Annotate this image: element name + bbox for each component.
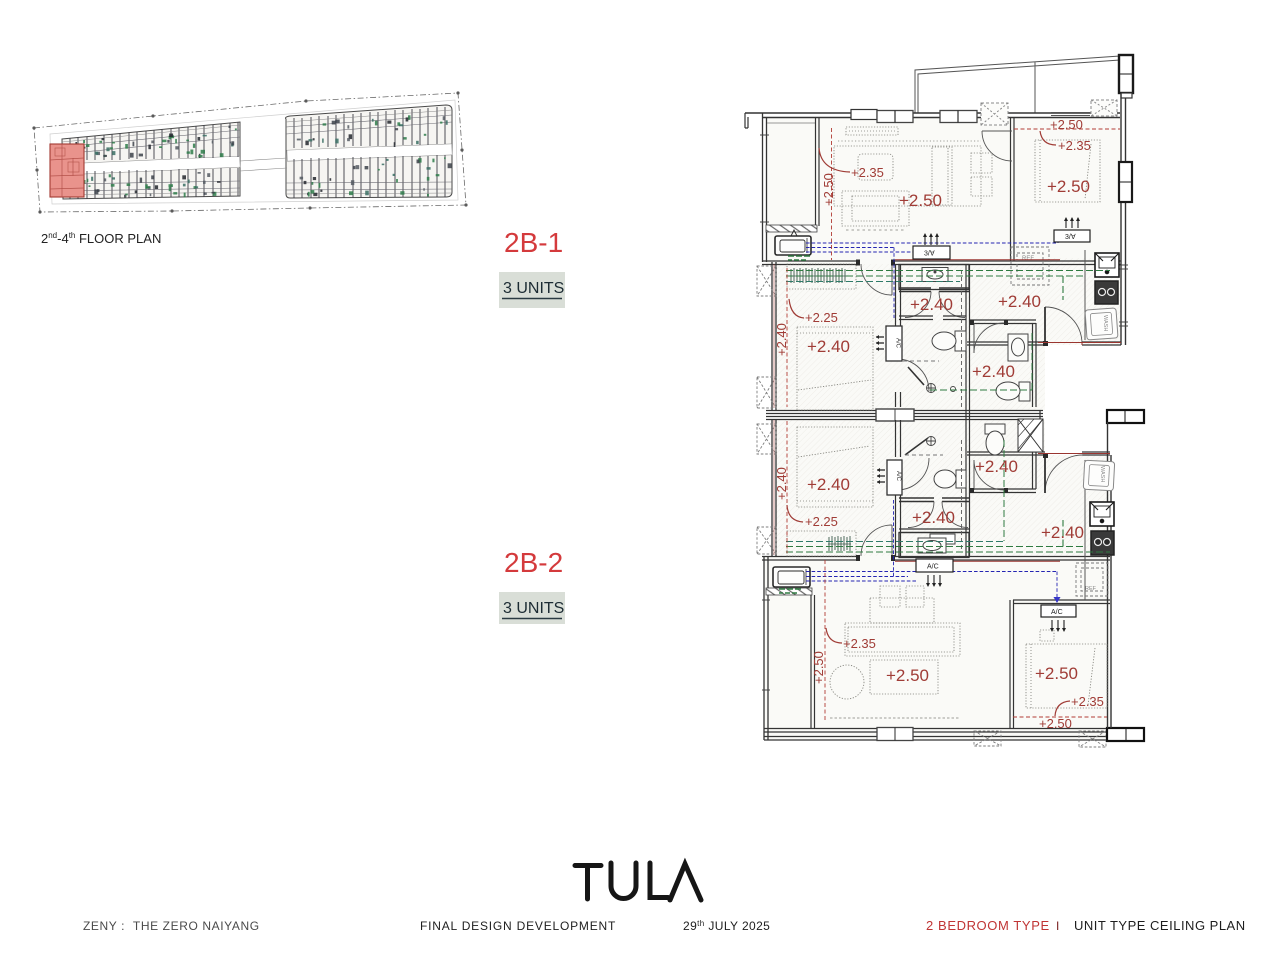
svg-text:A/C: A/C [895, 471, 901, 482]
svg-text:+2.40: +2.40 [910, 295, 953, 314]
svg-text:+2.35: +2.35 [843, 636, 876, 651]
svg-text:+2.40: +2.40 [975, 457, 1018, 476]
svg-text:3/∀: 3/∀ [924, 250, 935, 258]
svg-text:A/C: A/C [927, 564, 939, 571]
svg-text:3 UNITS: 3 UNITS [503, 280, 564, 297]
svg-text:+2.50: +2.50 [1035, 664, 1078, 683]
svg-text:2nd-4th FLOOR PLAN: 2nd-4th FLOOR PLAN [41, 231, 161, 246]
svg-text:+2.50: +2.50 [886, 666, 929, 685]
svg-text:3 UNITS: 3 UNITS [503, 600, 564, 617]
svg-text:A/C: A/C [1051, 609, 1063, 616]
svg-text:+2.25: +2.25 [805, 514, 838, 529]
svg-text:+2.50: +2.50 [1047, 177, 1090, 196]
svg-text:+2.40: +2.40 [972, 362, 1015, 381]
svg-text:+2.50: +2.50 [1050, 117, 1083, 132]
svg-text:ZENY : THE ZERO NAIYANG: ZENY : THE ZERO NAIYANG [83, 919, 260, 933]
svg-text:+2.35: +2.35 [851, 165, 884, 180]
svg-text:+2.35: +2.35 [1058, 138, 1091, 153]
svg-text:2 BEDROOM TYPE: 2 BEDROOM TYPE [926, 918, 1050, 933]
svg-text:UNIT TYPE CEILING PLAN: UNIT TYPE CEILING PLAN [1074, 918, 1246, 933]
svg-text:FINAL DESIGN DEVELOPMENT: FINAL DESIGN DEVELOPMENT [420, 919, 616, 933]
svg-text:+2.40: +2.40 [998, 292, 1041, 311]
svg-text:+2.40: +2.40 [774, 467, 789, 500]
svg-text:I: I [1056, 919, 1059, 933]
svg-text:REF: REF [1022, 256, 1034, 262]
svg-text:+2.50: +2.50 [1039, 716, 1072, 731]
svg-text:A/C: A/C [895, 338, 901, 349]
svg-text:+2.50: +2.50 [821, 173, 836, 206]
svg-text:+2.40: +2.40 [807, 475, 850, 494]
svg-text:3/∀: 3/∀ [1065, 233, 1076, 241]
svg-text:+2.40: +2.40 [1041, 523, 1084, 542]
svg-text:2B-2: 2B-2 [504, 547, 563, 578]
svg-text:+2.35: +2.35 [1071, 694, 1104, 709]
svg-text:2B-1: 2B-1 [504, 227, 563, 258]
svg-text:+2.40: +2.40 [774, 323, 789, 356]
svg-text:WASH: WASH [1102, 315, 1108, 331]
svg-text:+2.40: +2.40 [807, 337, 850, 356]
svg-text:+2.50: +2.50 [811, 651, 826, 684]
svg-text:29th JULY 2025: 29th JULY 2025 [683, 919, 770, 933]
svg-text:WASH: WASH [1099, 466, 1105, 482]
svg-text:+2.25: +2.25 [805, 310, 838, 325]
svg-text:REF: REF [1085, 586, 1097, 592]
svg-text:+2.50: +2.50 [899, 191, 942, 210]
svg-text:+2.40: +2.40 [912, 508, 955, 527]
